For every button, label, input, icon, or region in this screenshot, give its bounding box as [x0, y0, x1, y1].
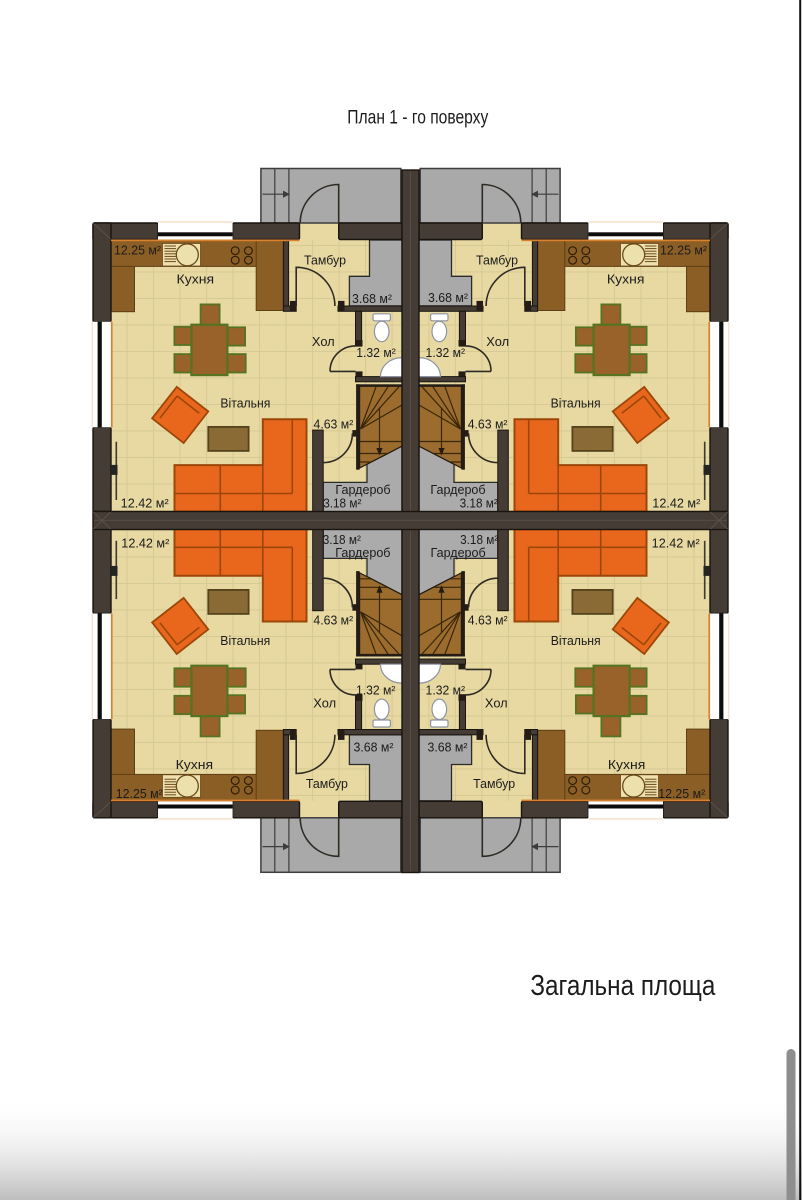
- svg-text:4.63 м²: 4.63 м²: [313, 614, 353, 628]
- svg-text:3.18 м²: 3.18 м²: [323, 497, 361, 511]
- svg-text:12.25 м²: 12.25 м²: [114, 244, 161, 258]
- svg-text:Тамбур: Тамбур: [304, 254, 346, 268]
- svg-text:Кухня: Кухня: [608, 758, 646, 772]
- svg-text:3.68 м²: 3.68 м²: [352, 292, 392, 306]
- svg-text:Гардероб: Гардероб: [431, 546, 486, 560]
- svg-text:3.18 м²: 3.18 м²: [460, 533, 498, 547]
- svg-text:Тамбур: Тамбур: [473, 777, 515, 791]
- svg-text:1.32 м²: 1.32 м²: [426, 684, 466, 698]
- svg-text:12.42 м²: 12.42 м²: [652, 537, 700, 551]
- svg-text:Загальна площа: Загальна площа: [530, 970, 716, 1002]
- svg-text:Хол: Хол: [485, 696, 508, 710]
- svg-text:Вітальня: Вітальня: [551, 397, 601, 411]
- svg-text:Тамбур: Тамбур: [476, 254, 518, 268]
- svg-text:Хол: Хол: [486, 335, 509, 349]
- svg-text:Хол: Хол: [313, 696, 336, 710]
- svg-text:12.25 м²: 12.25 м²: [658, 787, 705, 801]
- svg-text:3.68 м²: 3.68 м²: [428, 741, 468, 755]
- svg-text:12.25 м²: 12.25 м²: [660, 244, 707, 258]
- svg-text:1.32 м²: 1.32 м²: [426, 346, 466, 360]
- svg-text:Гардероб: Гардероб: [335, 483, 390, 497]
- svg-text:Гардероб: Гардероб: [430, 483, 485, 497]
- svg-text:Хол: Хол: [312, 335, 335, 349]
- svg-text:Вітальня: Вітальня: [220, 634, 270, 648]
- svg-text:3.68 м²: 3.68 м²: [428, 291, 468, 305]
- svg-text:3.68 м²: 3.68 м²: [354, 741, 394, 755]
- svg-text:Тамбур: Тамбур: [306, 777, 348, 791]
- svg-text:12.25 м²: 12.25 м²: [116, 787, 163, 801]
- svg-text:12.42 м²: 12.42 м²: [121, 497, 169, 511]
- svg-text:Вітальня: Вітальня: [551, 634, 601, 648]
- svg-text:План 1 - го поверху: План 1 - го поверху: [347, 107, 488, 129]
- svg-text:12.42 м²: 12.42 м²: [652, 497, 700, 511]
- svg-text:Вітальня: Вітальня: [220, 397, 270, 411]
- svg-text:4.63 м²: 4.63 м²: [468, 417, 508, 431]
- svg-text:Кухня: Кухня: [176, 758, 214, 772]
- svg-text:3.18 м²: 3.18 м²: [323, 533, 361, 547]
- svg-text:1.32 м²: 1.32 м²: [356, 684, 396, 698]
- svg-text:1.32 м²: 1.32 м²: [356, 346, 396, 360]
- svg-text:12.42 м²: 12.42 м²: [121, 537, 169, 551]
- svg-text:3.18 м²: 3.18 м²: [460, 497, 498, 511]
- svg-text:Кухня: Кухня: [177, 273, 215, 287]
- svg-text:Гардероб: Гардероб: [335, 546, 390, 560]
- svg-text:4.63 м²: 4.63 м²: [468, 614, 508, 628]
- svg-text:Кухня: Кухня: [607, 273, 645, 287]
- svg-text:4.63 м²: 4.63 м²: [314, 417, 354, 431]
